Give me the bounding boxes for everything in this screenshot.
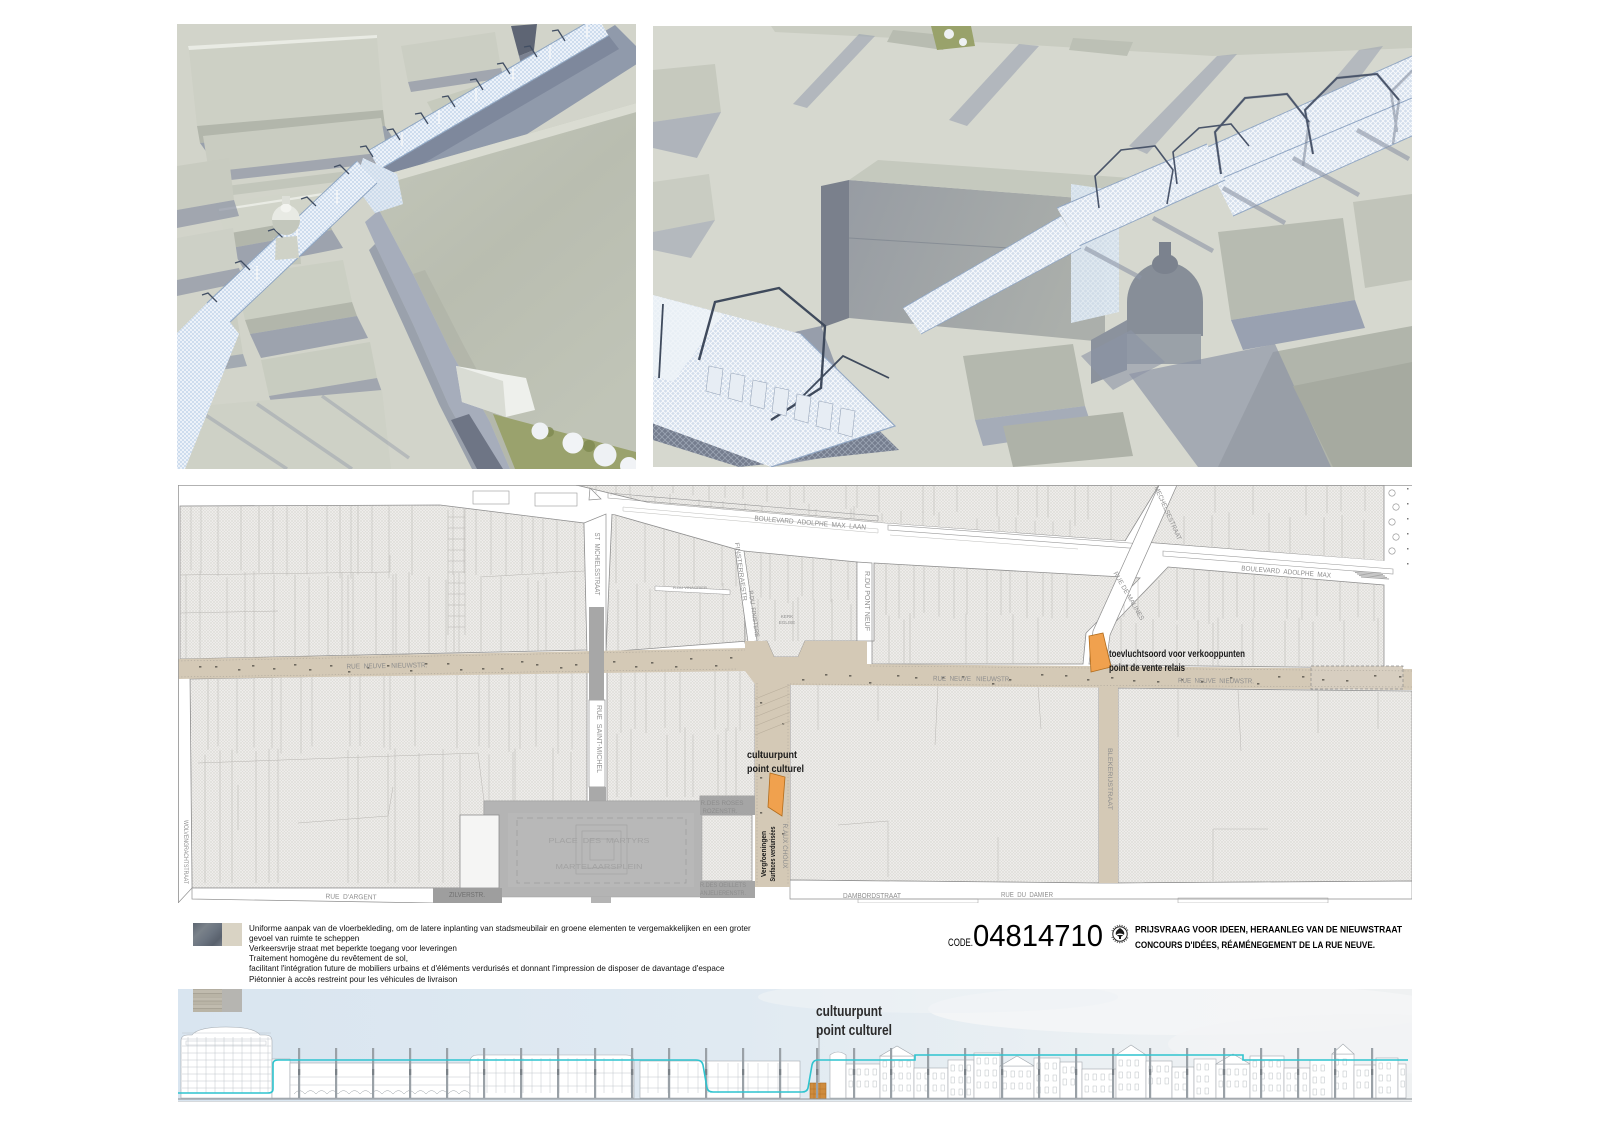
svg-text:R.DES OEILLETS: R.DES OEILLETS: [700, 882, 746, 889]
svg-text:RUE NEUVE NIEUWSTR.: RUE NEUVE NIEUWSTR.: [1178, 678, 1254, 686]
svg-text:Surfaces verdurisées: Surfaces verdurisées: [770, 826, 777, 881]
svg-text:EGLISE: EGLISE: [779, 620, 795, 625]
svg-text:WOLVENGRACHTSTRAAT: WOLVENGRACHTSTRAAT: [182, 820, 189, 884]
svg-text:04814710: 04814710: [973, 918, 1103, 953]
svg-text:R.AUX CHOUX: R.AUX CHOUX: [781, 824, 788, 870]
svg-text:PLACE DES MARTYRS: PLACE DES MARTYRS: [549, 838, 650, 845]
svg-text:R.DU PONT NEUF: R.DU PONT NEUF: [863, 571, 870, 631]
svg-text:CONCOURS D'IDÉES, RÉAMÉNEGEMEN: CONCOURS D'IDÉES, RÉAMÉNEGEMENT DE LA RU…: [1135, 939, 1375, 950]
svg-text:RUE NEUVE NIEUWSTR.: RUE NEUVE NIEUWSTR.: [933, 676, 1011, 684]
svg-text:BLEKERIJSTRAAT: BLEKERIJSTRAAT: [1106, 748, 1113, 810]
svg-text:RUE DU DAMIER: RUE DU DAMIER: [1001, 892, 1053, 899]
svg-text:ZILVERSTR.: ZILVERSTR.: [449, 892, 485, 899]
svg-text:ROZENSTR.: ROZENSTR.: [703, 808, 738, 815]
svg-text:MARTELAARSPLEIN: MARTELAARSPLEIN: [556, 864, 643, 871]
svg-text:CODE.: CODE.: [948, 937, 973, 949]
svg-text:RUE NEUVE NIEUWSTR.: RUE NEUVE NIEUWSTR.: [346, 662, 427, 670]
svg-text:DAMBORDSTRAAT: DAMBORDSTRAAT: [843, 893, 902, 900]
svg-text:point de vente relais: point de vente relais: [1109, 662, 1185, 674]
svg-text:R.DU VINAGRIER: R.DU VINAGRIER: [673, 586, 707, 590]
svg-text:cultuurpunt: cultuurpunt: [816, 1004, 882, 1020]
svg-text:Vergroeningen: Vergroeningen: [761, 831, 768, 877]
svg-text:toevluchtsoord voor verkooppun: toevluchtsoord voor verkooppunten: [1109, 648, 1245, 660]
svg-text:cultuurpunt: cultuurpunt: [747, 749, 797, 761]
svg-text:R.DES ROSES: R.DES ROSES: [701, 800, 744, 807]
svg-text:point culturel: point culturel: [747, 763, 804, 775]
svg-text:KERK: KERK: [781, 614, 793, 619]
svg-text:RUE SAINT-MICHEL: RUE SAINT-MICHEL: [595, 705, 602, 773]
svg-text:RUE D'ARGENT: RUE D'ARGENT: [325, 894, 377, 902]
svg-text:PRIJSVRAAG VOOR IDEEN, HERAANL: PRIJSVRAAG VOOR IDEEN, HERAANLEG VAN DE …: [1135, 925, 1402, 935]
svg-text:ANJELIERENSTR.: ANJELIERENSTR.: [700, 890, 746, 897]
svg-text:point culturel: point culturel: [816, 1023, 892, 1039]
svg-text:ST MICHIELSSTRAAT: ST MICHIELSSTRAAT: [593, 533, 600, 597]
